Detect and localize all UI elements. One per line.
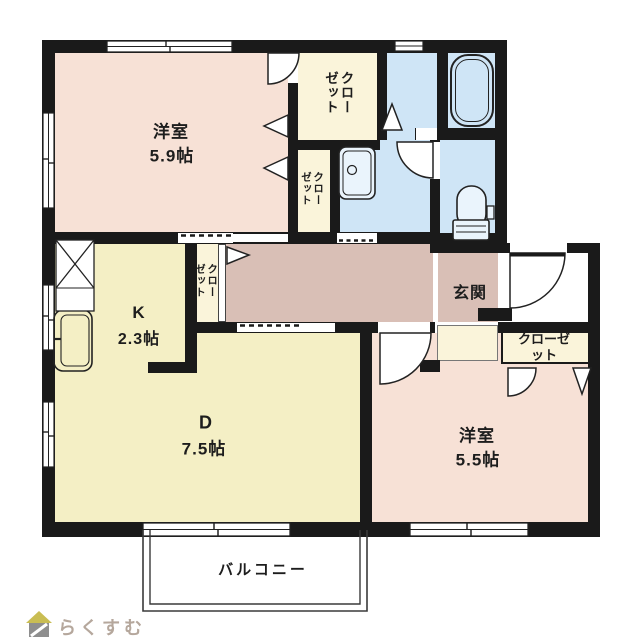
- floorplan-image: 洋室 5.9帖 クローゼット クローゼット クローゼット K 2.3帖 D 7.…: [0, 0, 640, 640]
- window-balcony-dining: [143, 523, 290, 536]
- label-kitchen-size: 2.3帖: [118, 325, 160, 349]
- label-western2-size: 5.5帖: [456, 446, 501, 471]
- label-western1-size: 5.9帖: [150, 142, 195, 167]
- label-kitchen-name: K: [132, 303, 145, 323]
- label-closet-top: クローゼット: [322, 71, 353, 119]
- label-dining-size: 7.5帖: [182, 435, 227, 460]
- door-arc-western2: [380, 333, 431, 384]
- washbasin-icon: [339, 147, 375, 199]
- window-left-dining: [43, 402, 54, 467]
- label-western2-name: 洋室: [459, 422, 495, 447]
- door-arc-toilet: [397, 142, 433, 178]
- label-entrance: 玄関: [453, 279, 487, 303]
- label-dining-name: D: [199, 413, 213, 434]
- door-arc-closet59: [268, 53, 299, 84]
- door-arc-closet-bedroom: [508, 368, 536, 396]
- logo-house-icon: [26, 611, 52, 637]
- window-top-small: [395, 41, 423, 51]
- label-closet-bedroom: クローゼット: [515, 331, 573, 362]
- window-left-western1: [43, 113, 54, 208]
- fixture-layer: [0, 0, 640, 640]
- label-closet-hall: クローゼット: [194, 264, 218, 301]
- logo-text: らくすむ: [58, 614, 146, 640]
- kitchen-sink-icon: [54, 310, 92, 371]
- label-closet-mid: クローゼット: [300, 172, 324, 209]
- window-bottom-western2: [410, 523, 528, 536]
- label-western1-name: 洋室: [153, 118, 189, 143]
- label-balcony: バルコニー: [218, 559, 308, 580]
- refrigerator-space-icon: [56, 240, 94, 311]
- bathtub-icon: [451, 55, 493, 126]
- toilet-icon: [453, 186, 494, 240]
- door-arc-entrance: [510, 253, 565, 308]
- window-left-kitchen: [43, 285, 54, 350]
- window-top-main: [107, 41, 232, 52]
